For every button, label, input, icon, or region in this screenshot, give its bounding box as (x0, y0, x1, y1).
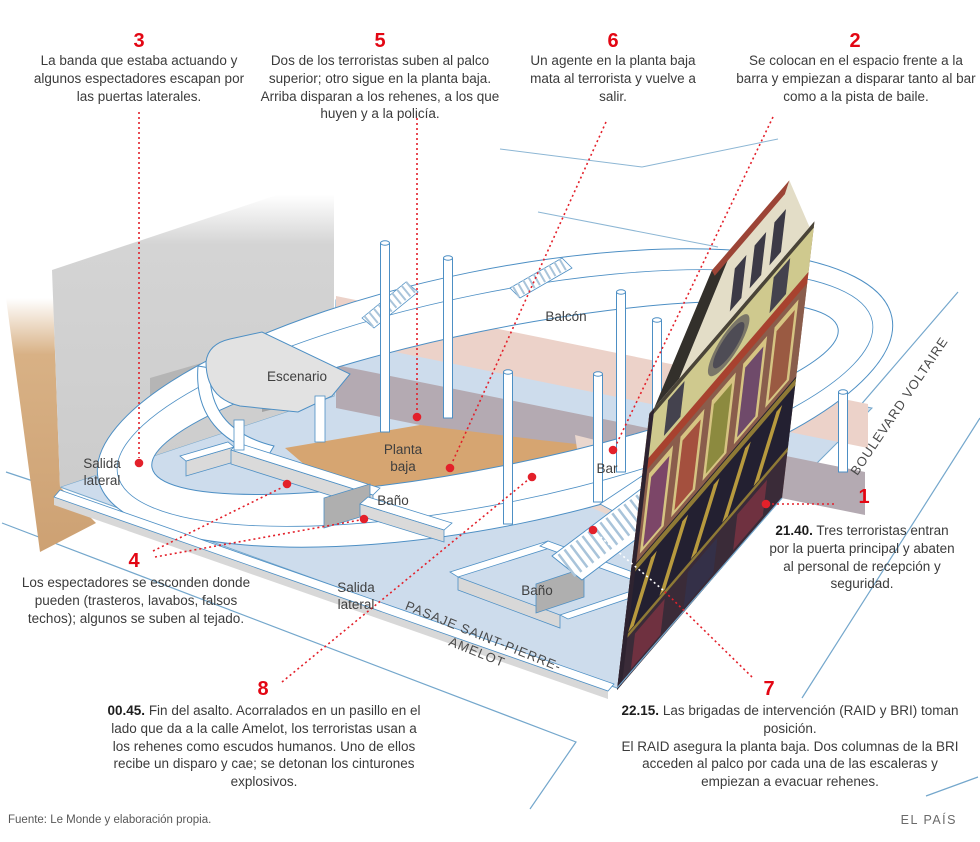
callout-text-2: Se colocan en el espacio frente a la bar… (732, 52, 980, 105)
callout-number-8: 8 (243, 679, 283, 699)
callout-3-body: La banda que estaba actuando y algunos e… (34, 53, 244, 104)
label-salida-lateral-1: Salida lateral (72, 456, 132, 490)
building-wireframe (500, 139, 778, 247)
source-credit: Fuente: Le Monde y elaboración propia. (8, 814, 211, 828)
brand-logo: EL PAÍS (857, 813, 957, 828)
label-salida-lateral-2: Salida lateral (326, 580, 386, 614)
label-planta-baja: Planta baja (370, 442, 436, 476)
callout-text-6: Un agente en la planta baja mata al terr… (521, 52, 705, 105)
callout-number-3: 3 (119, 31, 159, 51)
callout-7-line1: 22.15. Las brigadas de intervención (RAI… (620, 702, 960, 738)
callout-7-body2: El RAID asegura la planta baja. Dos colu… (620, 738, 960, 791)
callout-text-3: La banda que estaba actuando y algunos e… (29, 52, 249, 105)
callout-text-4: Los espectadores se esconden donde puede… (10, 574, 262, 627)
callout-1-time: 21.40. (775, 523, 813, 538)
callout-4-body: Los espectadores se esconden donde puede… (22, 575, 250, 626)
callout-number-6: 6 (593, 31, 633, 51)
callout-number-2: 2 (835, 31, 875, 51)
callout-text-7: 22.15. Las brigadas de intervención (RAI… (620, 702, 960, 791)
callout-text-1: 21.40. Tres terroristas entran por la pu… (764, 522, 960, 593)
callout-text-8: 00.45. Fin del asalto. Acorralados en un… (106, 702, 422, 791)
callout-8-body: Fin del asalto. Acorralados en un pasill… (111, 703, 420, 789)
callout-7-time: 22.15. (622, 703, 660, 718)
callout-number-5: 5 (360, 31, 400, 51)
label-escenario: Escenario (263, 369, 331, 386)
label-balcon: Balcón (540, 309, 592, 326)
callout-number-7: 7 (749, 679, 789, 699)
infographic-canvas: 3 5 6 2 1 4 8 7 La banda que estaba actu… (0, 0, 980, 842)
callout-number-4: 4 (114, 551, 154, 571)
callout-5-body: Dos de los terroristas suben al palco su… (261, 53, 500, 121)
callout-8-time: 00.45. (108, 703, 146, 718)
callout-text-5: Dos de los terroristas suben al palco su… (254, 52, 506, 123)
label-bar: Bar (589, 461, 625, 478)
callout-7-body: Las brigadas de intervención (RAID y BRI… (663, 703, 959, 736)
callout-2-body: Se colocan en el espacio frente a la bar… (736, 53, 975, 104)
callout-6-body: Un agente en la planta baja mata al terr… (530, 53, 696, 104)
label-bano-1: Baño (368, 493, 418, 510)
label-bano-2: Baño (512, 583, 562, 600)
